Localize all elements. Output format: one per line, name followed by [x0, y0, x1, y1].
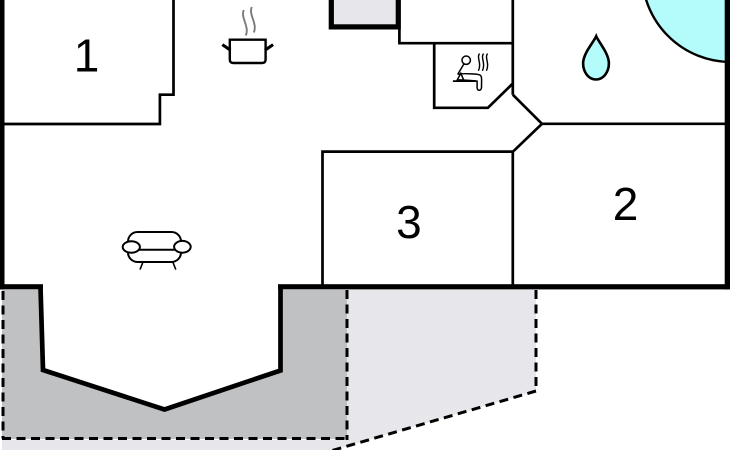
svg-text:2: 2	[613, 178, 639, 230]
svg-text:3: 3	[396, 196, 422, 248]
svg-text:1: 1	[74, 29, 100, 81]
